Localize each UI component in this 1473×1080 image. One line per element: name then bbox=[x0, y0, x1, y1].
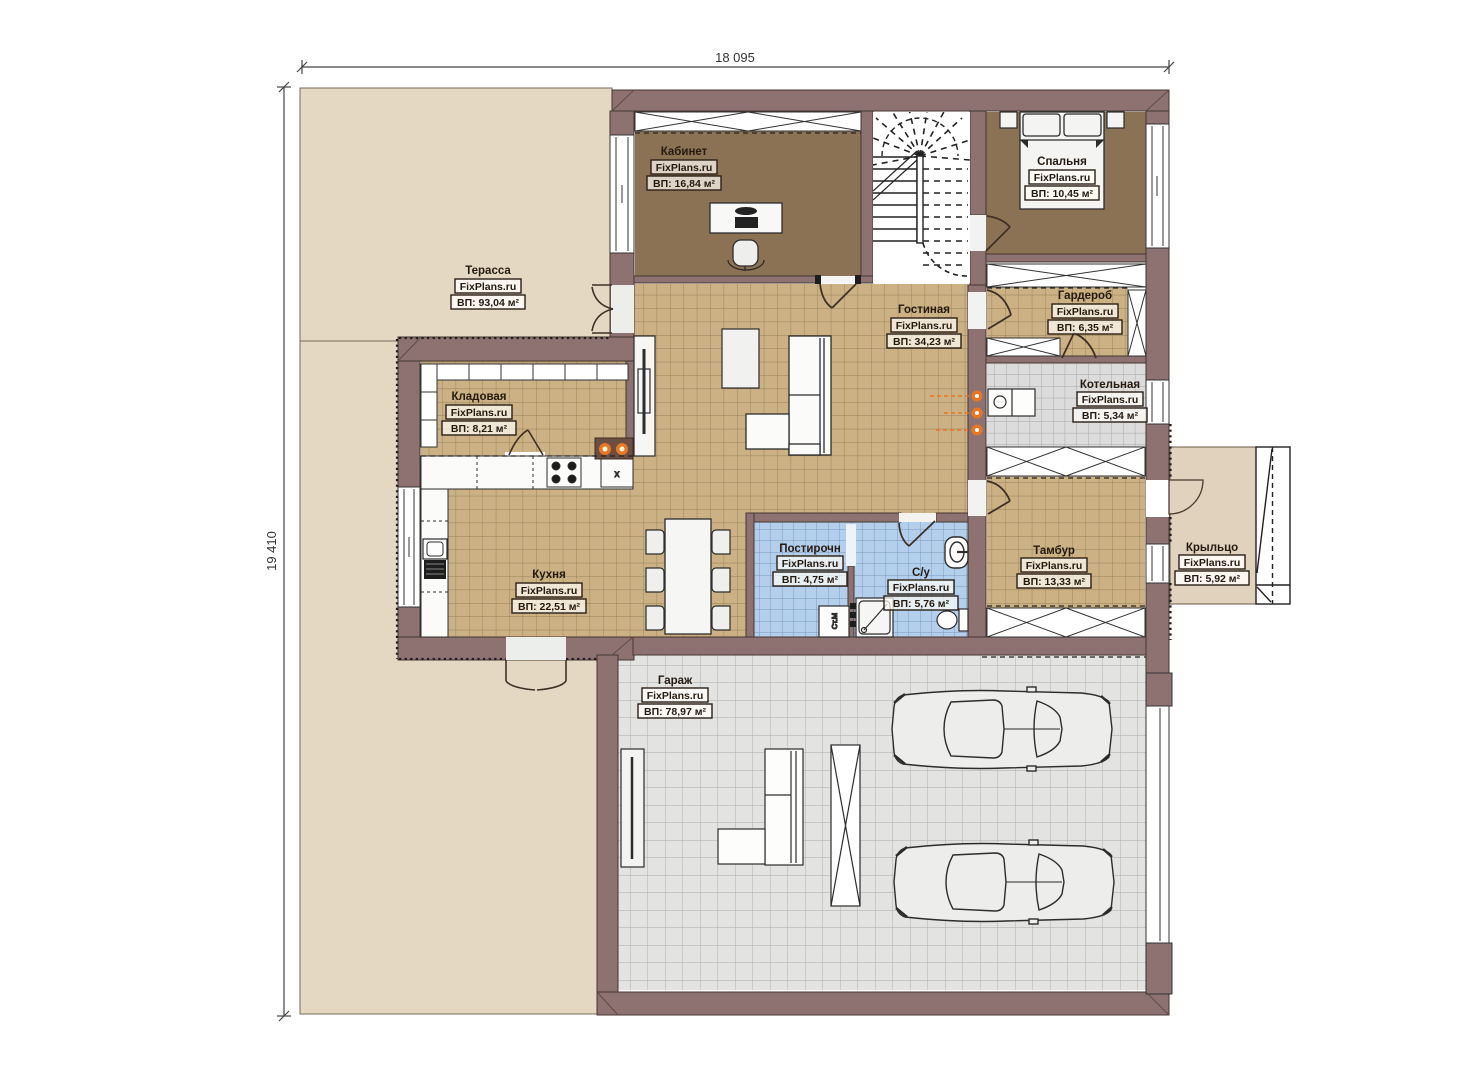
svg-text:ВП: 4,75 м²: ВП: 4,75 м² bbox=[782, 574, 839, 586]
svg-text:Гараж: Гараж bbox=[658, 675, 693, 687]
svg-text:Кладовая: Кладовая bbox=[451, 391, 506, 403]
svg-text:Терасса: Терасса bbox=[465, 265, 511, 277]
svg-text:ВП: 10,45 м²: ВП: 10,45 м² bbox=[1031, 188, 1094, 200]
svg-text:FixPlans.ru: FixPlans.ru bbox=[451, 407, 508, 419]
svg-text:FixPlans.ru: FixPlans.ru bbox=[1184, 557, 1241, 569]
svg-text:ВП: 6,35 м²: ВП: 6,35 м² bbox=[1057, 322, 1114, 334]
svg-text:Котельная: Котельная bbox=[1080, 379, 1140, 391]
svg-text:FixPlans.ru: FixPlans.ru bbox=[1026, 560, 1083, 572]
svg-text:FixPlans.ru: FixPlans.ru bbox=[782, 558, 839, 570]
svg-text:19 410: 19 410 bbox=[264, 531, 279, 571]
svg-text:FixPlans.ru: FixPlans.ru bbox=[647, 690, 704, 702]
svg-text:FixPlans.ru: FixPlans.ru bbox=[896, 320, 953, 332]
svg-text:Постирочн: Постирочн bbox=[779, 543, 841, 555]
svg-text:Кухня: Кухня bbox=[532, 569, 566, 581]
svg-text:ВП: 5,34 м²: ВП: 5,34 м² bbox=[1082, 410, 1139, 422]
svg-text:18 095: 18 095 bbox=[715, 50, 755, 65]
svg-text:ВП: 16,84 м²: ВП: 16,84 м² bbox=[653, 178, 716, 190]
svg-text:Крыльцо: Крыльцо bbox=[1186, 542, 1238, 554]
svg-text:FixPlans.ru: FixPlans.ru bbox=[1082, 394, 1139, 406]
svg-text:x: x bbox=[615, 469, 620, 480]
svg-text:ВП: 93,04 м²: ВП: 93,04 м² bbox=[457, 297, 520, 309]
svg-text:ВП: 34,23 м²: ВП: 34,23 м² bbox=[893, 336, 956, 348]
svg-text:Гардероб: Гардероб bbox=[1058, 290, 1112, 302]
svg-text:ВП: 22,51 м²: ВП: 22,51 м² bbox=[518, 601, 581, 613]
svg-text:С/у: С/у bbox=[912, 567, 931, 579]
svg-text:ВП: 5,92 м²: ВП: 5,92 м² bbox=[1184, 573, 1241, 585]
svg-text:Тамбур: Тамбур bbox=[1033, 545, 1075, 557]
svg-text:ВП: 78,97 м²: ВП: 78,97 м² bbox=[644, 706, 707, 718]
svg-text:ВП: 13,33 м²: ВП: 13,33 м² bbox=[1023, 576, 1086, 588]
svg-text:Кабинет: Кабинет bbox=[661, 146, 708, 158]
svg-text:Спальня: Спальня bbox=[1037, 156, 1087, 168]
svg-text:ВП: 5,76 м²: ВП: 5,76 м² bbox=[893, 598, 950, 610]
svg-text:FixPlans.ru: FixPlans.ru bbox=[521, 585, 578, 597]
svg-text:Гостиная: Гостиная bbox=[898, 304, 950, 316]
svg-text:ВП: 8,21 м²: ВП: 8,21 м² bbox=[451, 423, 508, 435]
svg-text:FixPlans.ru: FixPlans.ru bbox=[656, 162, 713, 174]
svg-text:FixPlans.ru: FixPlans.ru bbox=[460, 281, 517, 293]
svg-text:Ст.М: Ст.М bbox=[830, 613, 839, 629]
svg-text:FixPlans.ru: FixPlans.ru bbox=[1057, 306, 1114, 318]
svg-text:FixPlans.ru: FixPlans.ru bbox=[893, 582, 950, 594]
svg-text:FixPlans.ru: FixPlans.ru bbox=[1034, 172, 1091, 184]
